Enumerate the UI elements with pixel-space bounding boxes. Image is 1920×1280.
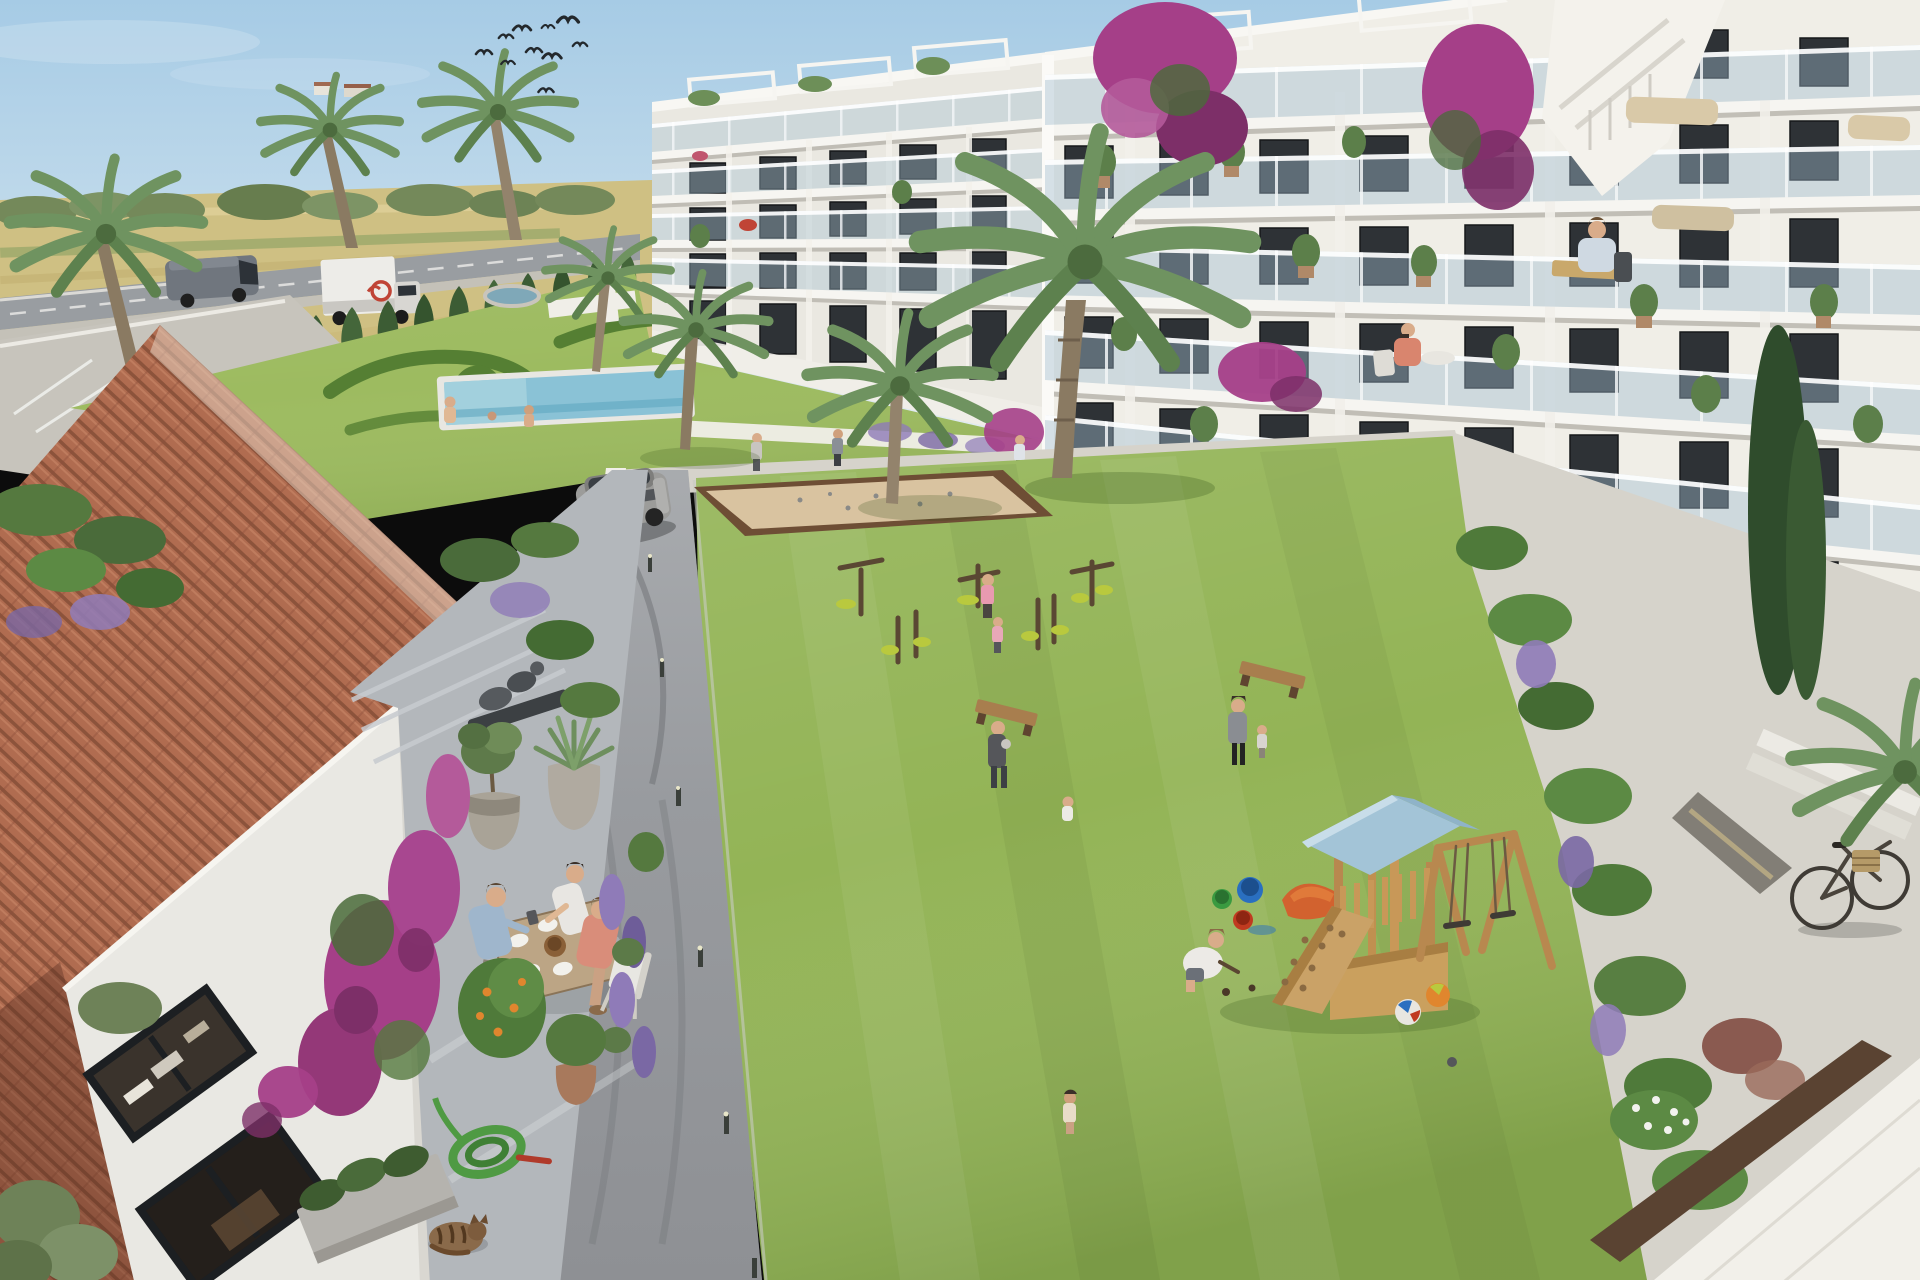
cloud	[170, 58, 430, 90]
toddler-small	[1062, 797, 1074, 822]
architectural-render	[0, 0, 1920, 1280]
render-canvas	[0, 0, 1920, 1280]
garden-pond	[485, 286, 539, 306]
white-flower-bush	[1610, 1090, 1698, 1150]
lemon-tree	[458, 958, 546, 1058]
